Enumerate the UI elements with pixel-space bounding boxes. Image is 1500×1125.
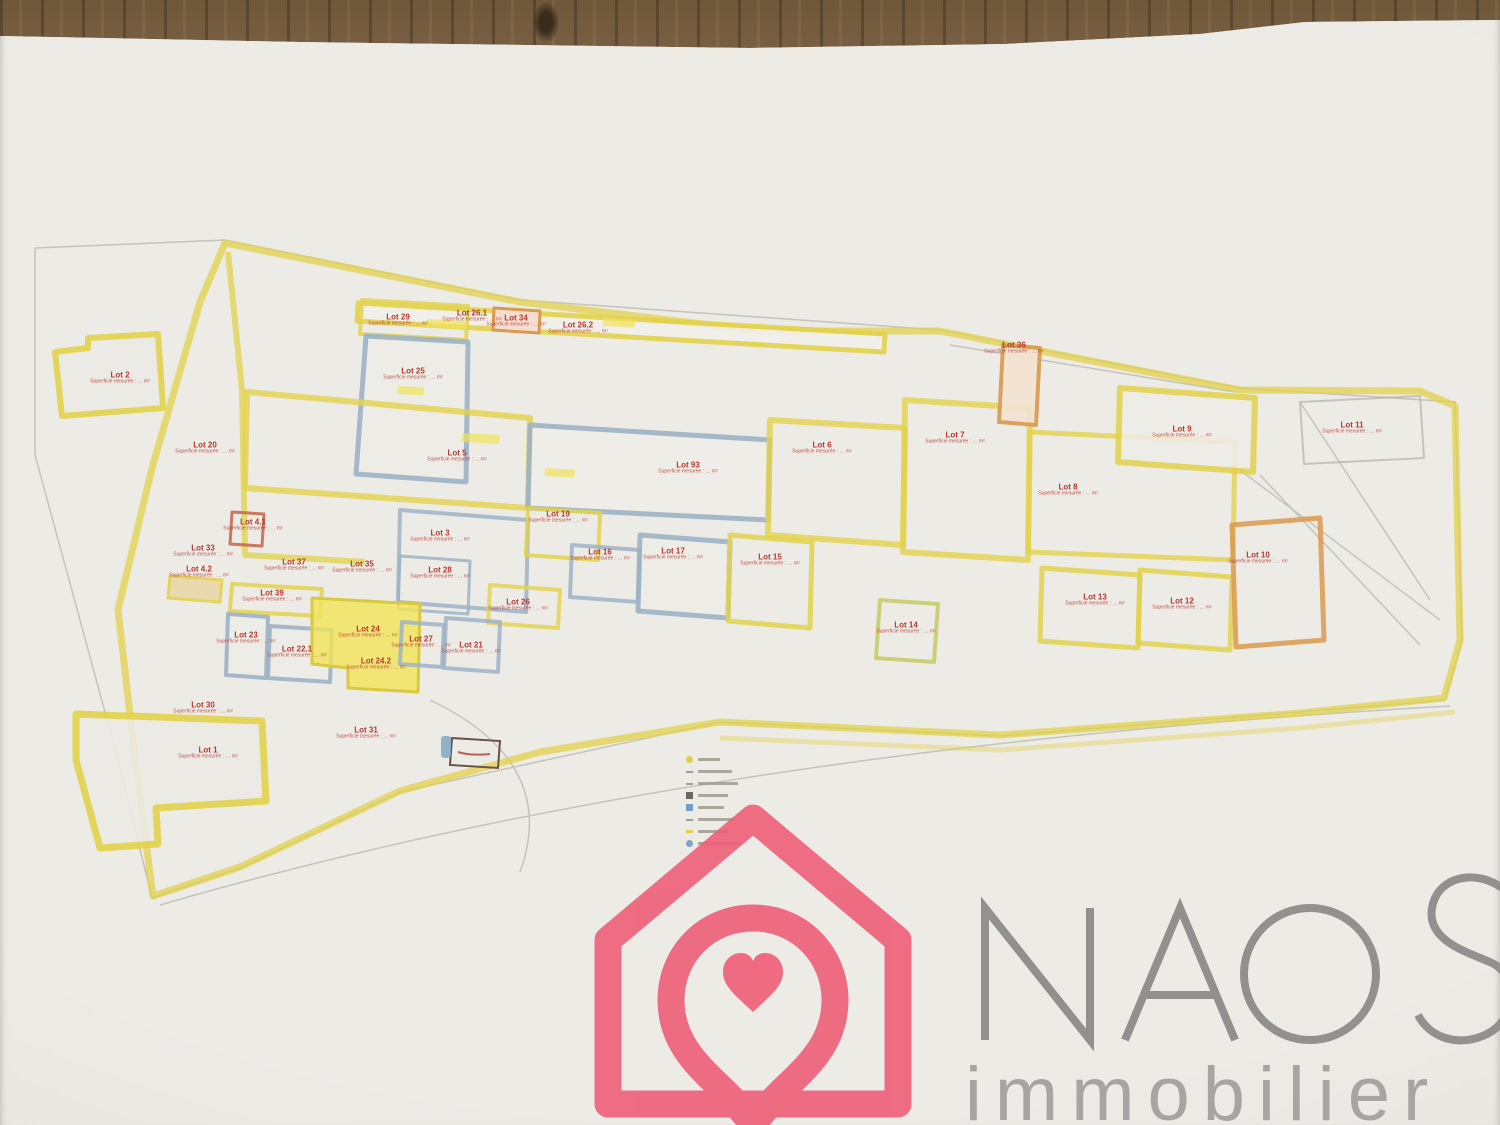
legend-item xyxy=(686,792,740,799)
dark-square-marker xyxy=(686,792,693,799)
legend-text-line xyxy=(698,842,740,845)
parcel-lot-19 xyxy=(526,508,600,560)
parcel-lot-10 xyxy=(1232,518,1324,647)
plan-legend xyxy=(686,756,740,847)
parcel-lot-23 xyxy=(226,614,268,678)
legend-item xyxy=(686,756,740,763)
parcel-lot-39 xyxy=(230,584,322,616)
parcel-lot-1 xyxy=(76,714,266,848)
parcel-lot-17 xyxy=(638,535,730,618)
parcel-lot-6 xyxy=(768,420,905,545)
parcel-lot-21 xyxy=(444,618,500,672)
parcel-lot-2 xyxy=(55,334,163,416)
legend-item xyxy=(686,804,740,811)
photo-of-site-plan: Lot 2Superficie mesurée : … m²Lot 20Supe… xyxy=(0,0,1500,1125)
parcel-lot-14 xyxy=(876,600,938,662)
legend-item xyxy=(686,816,740,823)
yellow-circle-marker xyxy=(686,756,693,763)
blue-circle-marker xyxy=(686,840,693,847)
parcel-lot-12 xyxy=(1138,570,1232,650)
pencil-line xyxy=(686,819,693,821)
legend-text-line xyxy=(698,782,738,785)
parcel-lot-13 xyxy=(1040,568,1140,648)
hatched-box xyxy=(168,576,222,602)
legend-item xyxy=(686,828,740,835)
parcel-lot-34 xyxy=(493,308,540,333)
blue-square-marker xyxy=(686,804,693,811)
parcel-lot-16 xyxy=(570,545,640,602)
yellow-line-marker xyxy=(686,830,693,833)
parcel-lot-36 xyxy=(999,345,1040,425)
pencil-line xyxy=(686,771,693,773)
legend-text-line xyxy=(698,818,734,821)
parcel-lot-9 xyxy=(1118,388,1255,472)
legend-item xyxy=(686,780,740,787)
legend-text-line xyxy=(698,758,720,761)
legend-item xyxy=(686,768,740,775)
legend-item xyxy=(686,840,740,847)
parcel-lot-15 xyxy=(728,535,812,628)
legend-text-line xyxy=(698,794,728,797)
legend-text-line xyxy=(698,830,728,833)
pencil-line xyxy=(686,783,693,785)
legend-text-line xyxy=(698,770,732,773)
legend-text-line xyxy=(698,806,724,809)
site-plan-drawing xyxy=(0,0,1500,1125)
survey-symbol xyxy=(441,736,451,758)
